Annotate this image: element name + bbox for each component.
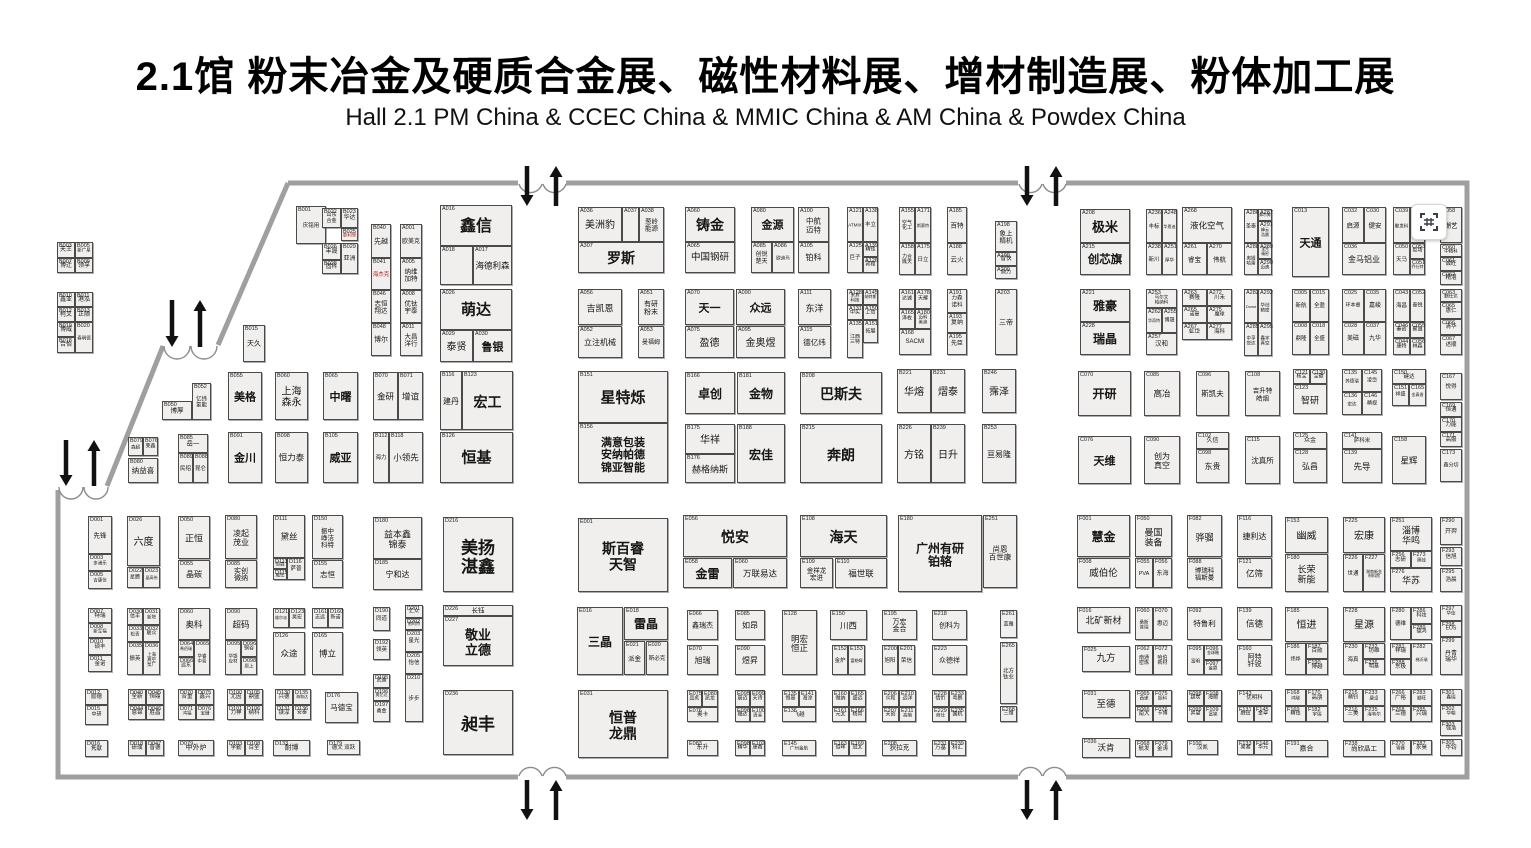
booth-name: 秦创 xyxy=(1394,328,1409,334)
booth-name: 鑫瑞 xyxy=(1441,695,1461,700)
booth: E166杨育 xyxy=(849,707,866,722)
booth: C053炬场 xyxy=(1410,243,1425,259)
booth: E060万联易达 xyxy=(733,558,787,588)
booth-name: 超码 xyxy=(226,620,256,630)
booth-number: B079 xyxy=(130,438,143,444)
booth-name: 曼福姆 xyxy=(639,340,663,347)
booth: A253马尔文 帕纳科 xyxy=(1146,289,1177,308)
booth: A193复纳 xyxy=(947,313,967,333)
booth-number: E180 xyxy=(900,516,913,522)
booth: F281祥瑞 xyxy=(1390,643,1411,659)
booth: B011港泓 xyxy=(75,292,93,307)
booth-name: 隽献 xyxy=(86,746,107,752)
booth-name: 如昂 xyxy=(736,621,764,630)
booth: B088昆仑 xyxy=(193,453,208,483)
booth-number: F060 xyxy=(1137,608,1150,614)
booth: E066鑫瑞杰 xyxy=(687,610,718,640)
booth-name: 铜谷 xyxy=(242,646,256,652)
booth-name: 航发 xyxy=(1136,746,1152,752)
scan-frame-icon xyxy=(1417,210,1441,234)
booth-number: C108 xyxy=(1247,372,1260,378)
booth-name: 敬业 立德 xyxy=(444,629,512,658)
booth: F075振科 xyxy=(1153,690,1172,706)
booth: A255博晟 xyxy=(1162,308,1177,333)
scan-icon[interactable] xyxy=(1411,204,1447,240)
booth: F108海顺 xyxy=(1204,690,1222,706)
booth: C066清华 xyxy=(1440,319,1462,335)
booth: A200鼎力 xyxy=(995,266,1017,279)
booth-name: 信旭 xyxy=(1441,554,1461,560)
booth-number: B253 xyxy=(984,425,997,431)
booth-name: 天诗 xyxy=(751,696,764,702)
booth: A257汉和 xyxy=(1146,333,1177,355)
booth-name: 宏佳 xyxy=(738,448,784,461)
booth-number: A221 xyxy=(1082,290,1095,296)
booth-number: A268 xyxy=(1184,208,1197,214)
booth: A180迈科 美迪 xyxy=(915,309,931,329)
booth-name: 幽威 xyxy=(1286,531,1327,542)
booth-number: A198 xyxy=(997,222,1010,228)
booth: F060桑斯 普瑞 xyxy=(1135,607,1153,640)
booth-number: E200 xyxy=(884,646,897,652)
booth-number: D080 xyxy=(227,516,240,522)
booth: B028固科 xyxy=(322,260,341,274)
booth-name: 华钧 xyxy=(1441,745,1461,751)
booth: B003天王 xyxy=(57,242,75,258)
booth: A195先臣 xyxy=(947,333,967,355)
booth: D192领英 xyxy=(373,639,390,660)
booth-name: 华熔 xyxy=(898,387,930,398)
booth-number: D190 xyxy=(375,608,388,614)
booth-number: A090 xyxy=(738,290,751,296)
booth: B231熠泰 xyxy=(931,369,965,413)
booth-number: B116 xyxy=(442,372,454,378)
booth-name: 博立 xyxy=(313,650,342,660)
booth-name: 春明德 xyxy=(76,336,92,341)
booth-name: 志研 xyxy=(1391,557,1410,563)
booth-name: 乔仕特 xyxy=(1411,265,1424,269)
booth: A261睿宝 xyxy=(1182,243,1207,275)
booth-number: D176 xyxy=(327,693,340,699)
booth-name: 信丰 xyxy=(128,614,142,620)
booth: F076卡博 xyxy=(1153,706,1172,722)
booth-name: 东洋 xyxy=(799,303,830,313)
booth-name: 新军福 xyxy=(89,628,111,633)
booth-name: 恒基 xyxy=(441,451,512,468)
booth-name: 泰贤 xyxy=(441,341,472,352)
booth-name: 晶高伟 xyxy=(144,576,159,580)
booth: D180益本鑫 锦泰 xyxy=(373,517,422,559)
booth: A175日立 xyxy=(915,243,931,275)
booth-name: 华达 xyxy=(342,215,357,222)
booth: C169恒通 xyxy=(1440,402,1462,417)
booth-name: 拓展 xyxy=(864,329,877,335)
booth-name: 全新 xyxy=(129,694,145,700)
booth-name: 建丹 xyxy=(441,398,461,407)
booth-name: 众远 xyxy=(737,302,784,314)
booth-name: 峰云 浩晨 xyxy=(1259,228,1271,237)
booth-number: A175 xyxy=(917,244,930,250)
booth: F298EOS xyxy=(1440,621,1462,637)
booth-number: B001 xyxy=(298,207,311,213)
booth: E163佰晖 xyxy=(832,740,849,756)
booth-name: 创科为 xyxy=(933,622,966,630)
booth-number: C025 xyxy=(1344,290,1357,296)
booth-number: A095 xyxy=(738,327,751,333)
booth: A018 xyxy=(440,246,473,285)
booth-name: 华翰 xyxy=(1441,711,1461,716)
booth-name: 狄拉克 xyxy=(883,745,916,752)
booth: B175华祥 xyxy=(685,424,735,454)
booth-name: 百特 xyxy=(948,222,966,229)
booth-name: 新川 xyxy=(1147,257,1161,263)
booth-name: 美洲豹 xyxy=(579,220,621,231)
booth-name: 众和 xyxy=(883,696,898,702)
booth-name: 优钛 宇泰 xyxy=(401,300,421,315)
booth: F016北矿新材 xyxy=(1077,607,1130,633)
booth: A198象上 精机 xyxy=(995,221,1017,252)
booth-number: B098 xyxy=(277,433,290,439)
booth: D096铜谷 xyxy=(241,640,257,657)
booth-number: F276 xyxy=(1392,569,1405,575)
booth: B022山东 合金 xyxy=(322,208,341,228)
booth: C076天维 xyxy=(1078,436,1131,484)
booth-number: C146 xyxy=(1364,393,1377,399)
booth: E228倩忻 xyxy=(932,690,949,707)
booth: E135恒基 xyxy=(782,690,799,707)
booth-name: 美格 xyxy=(229,391,261,403)
booth: D075鑫兴 xyxy=(196,689,214,705)
booth-number: A248 xyxy=(1164,210,1177,216)
booth-name: 恒进 xyxy=(1286,620,1327,631)
booth: C055聚诚 xyxy=(1410,322,1425,338)
booth-name: 海昌 xyxy=(1394,303,1409,309)
booth-name: 先越 xyxy=(372,238,390,246)
booth-name: 慧金 xyxy=(1078,531,1129,544)
booth-name: 汉和 xyxy=(1147,341,1176,348)
booth-name: 汉凯 xyxy=(1188,745,1217,751)
booth-name: 鸿晓 xyxy=(1286,695,1305,700)
booth-name: 金真香 xyxy=(1410,393,1425,397)
booth-number: F088 xyxy=(1189,559,1202,565)
booth-name: 液化空气 xyxy=(1183,221,1231,231)
booth-name: 斯必克 xyxy=(647,656,667,662)
booth-name: 阿特 钎锐 xyxy=(1238,653,1271,669)
booth: B060上海 森永 xyxy=(275,372,308,420)
booth: D226长钰 xyxy=(443,605,513,616)
booth-name: 甬金 xyxy=(374,709,389,715)
booth: E207天创 xyxy=(882,707,899,722)
booth-name: 金源 xyxy=(752,219,793,231)
booth-name: 力森 诺科 xyxy=(948,296,966,308)
booth-name: 富勒姆 xyxy=(849,658,864,662)
booth-name: 华银 应材 xyxy=(226,654,240,664)
booth-name: 百全 xyxy=(246,745,262,751)
booth: B026丰晟 xyxy=(322,243,341,260)
booth-number: B118 xyxy=(391,433,403,439)
booth: A056吉凯恩 xyxy=(578,289,622,325)
booth-number: E085 xyxy=(737,611,750,617)
booth-number: E109 xyxy=(802,559,815,565)
booth-name: 海德利森 xyxy=(474,262,511,272)
booth: D023晶高伟 xyxy=(143,567,160,588)
booth-number: F160 xyxy=(1239,646,1252,652)
booth: B215奔朗 xyxy=(800,424,882,483)
booth-name: 品炙 xyxy=(688,696,701,702)
booth: F146华元 xyxy=(1254,740,1272,755)
booth: D130兴德 xyxy=(275,689,293,705)
booth: F280德维 xyxy=(1390,607,1411,640)
booth: C025环本睿 xyxy=(1342,289,1364,322)
booth-name: 创为 真空 xyxy=(1145,453,1179,471)
booth-name: 广州有研 铂辂 xyxy=(899,543,981,570)
booth-number: D095 xyxy=(227,641,240,647)
booth: F131融钻 xyxy=(1237,706,1254,722)
booth: C135苏德瑞 xyxy=(1342,369,1362,392)
booth: A065中国钢研 xyxy=(685,242,735,273)
booth: E152金炉 xyxy=(832,645,848,675)
booth: D202依珂特 xyxy=(405,618,423,630)
booth: A208极米 xyxy=(1080,209,1130,243)
booth: D123昊宏 xyxy=(289,608,305,628)
booth-number: F186 xyxy=(1287,644,1300,650)
booth: D055晶碳 xyxy=(178,560,210,588)
booth-name: 精华 xyxy=(736,746,749,752)
booth: A051有研 粉末 xyxy=(638,289,664,325)
booth-name: 明基 xyxy=(1364,665,1384,671)
booth-name: 纳维 加特 xyxy=(401,268,421,283)
booth-number: A208 xyxy=(1082,210,1095,216)
booth: D016隽献 xyxy=(85,740,108,757)
booth-name: 三维 xyxy=(1001,712,1016,718)
booth-name: 聚发科 xyxy=(1394,223,1409,228)
booth-name: 空气 化工 xyxy=(900,221,914,232)
booth-name: 嘉峻 xyxy=(1365,303,1385,310)
booth-name: 久信 xyxy=(1197,438,1228,445)
booth: F228星源 xyxy=(1343,607,1385,642)
booth-number: C096 xyxy=(1198,372,1211,378)
booth-name: 九华 xyxy=(1365,336,1385,343)
booth-name: 高冶 xyxy=(1145,390,1179,400)
booth-number: C028 xyxy=(1344,323,1357,329)
booth: E020斯必克 xyxy=(646,641,668,675)
booth: F215精钊 xyxy=(1343,689,1363,706)
booth-name: 振科 xyxy=(1154,696,1171,701)
booth: C030健安 xyxy=(1364,207,1386,243)
booth-name: 广州金航 xyxy=(783,746,815,751)
booth-number: A125 xyxy=(849,243,862,249)
booth-number: B215 xyxy=(802,425,815,431)
booth-name: 萨科米 xyxy=(1343,438,1381,444)
booth: B020春明德 xyxy=(75,322,93,353)
booth-number: A111 xyxy=(800,290,812,296)
booth-name: 金卓 xyxy=(1255,712,1271,718)
booth-number: F153 xyxy=(1287,518,1300,524)
booth-name: 达诚 xyxy=(900,297,914,303)
booth-name: 宁和达 xyxy=(374,571,421,580)
booth-number: B015 xyxy=(245,326,258,332)
booth: D108百全 xyxy=(245,740,263,756)
booth-name: 志远 xyxy=(313,616,327,622)
booth: F182宇瑞 xyxy=(1306,706,1328,722)
booth-name: SACMI xyxy=(900,339,930,346)
booth-name: 迈奥 xyxy=(1259,265,1271,270)
booth-name: 恩锦 xyxy=(129,710,145,716)
booth: D022星腾 xyxy=(127,567,143,588)
booth: F216三美 xyxy=(1343,706,1363,722)
booth-name: 南大 xyxy=(1136,711,1152,717)
booth: B112海力 xyxy=(373,432,389,483)
booth: E016三晶 xyxy=(577,607,623,675)
booth-name: 惠仁 xyxy=(1441,308,1461,314)
booth-number: C013 xyxy=(1294,208,1307,214)
booth: C036金马铝业 xyxy=(1342,243,1386,275)
booth: C046秦创 xyxy=(1393,322,1410,338)
booth-name: 联众 xyxy=(144,631,159,637)
booth: D090超码 xyxy=(225,608,257,640)
booth-name: 特鲁利 xyxy=(1188,620,1221,628)
booth-name: 元太 xyxy=(833,712,848,718)
booth: E211高熵 xyxy=(899,707,916,722)
booth-name: 嘉合 xyxy=(1286,745,1327,753)
booth-number: B123 xyxy=(464,372,477,378)
booth-name: 恒基 xyxy=(783,696,798,702)
booth: B046志恒 翔达 xyxy=(371,290,391,323)
booth-name: 山东 合金 xyxy=(323,213,340,224)
booth-name: 力神 xyxy=(228,710,244,716)
booth-name: 天耀 xyxy=(916,297,930,303)
booth: F095富明 xyxy=(1187,645,1204,675)
booth-name: 金鼎 xyxy=(1205,665,1221,670)
booth-number: C015 xyxy=(1312,290,1325,296)
booth-name: 康卓 xyxy=(1364,695,1384,700)
booth-name: 金祥龙 宏进 xyxy=(801,567,832,582)
booth-name: 科炫 xyxy=(1412,613,1431,619)
booth: B018合怡 xyxy=(57,337,75,353)
booth-name: 纳特斯 xyxy=(864,295,877,299)
booth-number: C139 xyxy=(1344,450,1357,456)
booth: F139信德 xyxy=(1237,607,1272,640)
booth-number: A261 xyxy=(1184,244,1197,250)
booth: F180长荣 新能 xyxy=(1285,554,1328,592)
booth: A171斯赛特 xyxy=(915,207,931,243)
booth: B019博威 xyxy=(57,322,75,337)
booth-number: D026 xyxy=(129,517,142,523)
booth-number: E128 xyxy=(784,611,797,617)
booth: C008鼎隆 xyxy=(1292,322,1310,355)
booth-name: 凌岱 xyxy=(1363,378,1381,384)
booth: F226世通 xyxy=(1343,554,1363,592)
booth-number: F016 xyxy=(1079,608,1092,614)
booth-name: 明宏 恒正 xyxy=(783,635,816,654)
booth-name: 鸿福 xyxy=(179,710,195,715)
booth-name: 湖南新金 材料院 xyxy=(1364,570,1384,579)
booth-number: B040 xyxy=(373,225,386,231)
booth: A268液化空气 xyxy=(1182,207,1232,243)
booth-name: 北方 钛业 xyxy=(1001,669,1016,681)
booth-name: 金诺 xyxy=(89,661,111,667)
booth: C039聚发科 xyxy=(1393,207,1410,243)
booth-name: 雅豪 xyxy=(1081,300,1129,313)
booth: F066南大 xyxy=(1135,706,1153,722)
booth-name: 昶丰 xyxy=(444,715,512,734)
booth: E145广州金航 xyxy=(782,740,816,756)
booth-name: 麒仕达 xyxy=(1441,293,1461,298)
booth-name: 恒鼎 xyxy=(147,694,163,700)
booth-name: 启源 xyxy=(1343,222,1363,229)
booth: B048博尔 xyxy=(371,323,391,356)
booth: B080纳益喜 xyxy=(128,458,158,483)
booth-name: 亿纬 氢能 xyxy=(193,397,210,409)
booth-number: B046 xyxy=(373,291,386,297)
booth: A150上信 xyxy=(863,305,878,320)
booth-number: A185 xyxy=(949,208,962,214)
booth-name: 新航 xyxy=(1293,303,1309,309)
booth-number: E066 xyxy=(689,611,702,617)
booth-name: 奥科 xyxy=(179,620,209,630)
booth-name: 天马 xyxy=(1394,257,1409,263)
booth-number: E265 xyxy=(1002,643,1015,649)
booth: B246霈泽 xyxy=(982,369,1016,413)
booth-name: 德维 xyxy=(1391,621,1410,627)
booth: F238尚欣晶工 xyxy=(1343,740,1385,757)
booth: B221华熔 xyxy=(897,369,931,413)
booth-name: 斯百睿 天智 xyxy=(579,542,667,573)
booth: C065惠仁 xyxy=(1440,302,1462,319)
booth-name: 精视 xyxy=(1363,401,1381,407)
booth-name: 悦得 xyxy=(1441,384,1461,390)
booth: C050天马 xyxy=(1393,243,1410,275)
booth: B040先越 xyxy=(371,224,391,258)
booth-name: 健安 xyxy=(1365,222,1385,229)
booth: D190同道 xyxy=(373,607,390,631)
booth-name: 尚欣晶工 xyxy=(1344,745,1384,752)
booth: F068航发 xyxy=(1135,740,1153,757)
booth-name: 祥瑞 xyxy=(1391,648,1410,654)
booth-number: A257 xyxy=(1148,334,1161,340)
booth-name: 熠泰 xyxy=(932,387,964,398)
booth: F065西递 xyxy=(1135,690,1153,706)
booth: E136飞越 xyxy=(782,707,816,722)
booth-name: 伟航 xyxy=(1208,256,1231,263)
booth-number: E261 xyxy=(1002,611,1015,617)
booth-name: 怡信 xyxy=(406,661,422,667)
booth: D070合重 xyxy=(178,689,196,705)
booth-name: 开羿 xyxy=(1441,528,1461,535)
booth: F116捷利达 xyxy=(1237,515,1272,557)
booth-name: 普德 xyxy=(147,745,163,751)
booth: E268三维 xyxy=(1000,706,1017,722)
booth-name: 合怡 xyxy=(58,342,74,349)
booth-number: B176 xyxy=(687,455,700,461)
booth-name: 丰标 xyxy=(1147,224,1161,230)
booth-number: A053 xyxy=(640,327,653,333)
booth: E102康赛 xyxy=(750,740,765,756)
booth-name: 天通 xyxy=(1293,238,1328,250)
booth-name: 恒普 龙鼎 xyxy=(579,711,667,742)
booth-name: 中国钢研 xyxy=(686,253,734,264)
booth: A105铂科 xyxy=(798,242,829,273)
booth-number: B105 xyxy=(325,433,338,439)
booth-name: 粤鹏 xyxy=(950,696,965,702)
booth: C013天通 xyxy=(1292,207,1329,277)
booth-name: 环本睿 xyxy=(1343,304,1363,310)
booth: A037 xyxy=(622,207,639,242)
booth-name: 极米 xyxy=(1081,220,1129,235)
booth-name: 兰德 xyxy=(1391,711,1410,717)
booth-number: C043 xyxy=(1395,290,1408,296)
booth-name: 力能 xyxy=(1441,422,1461,428)
